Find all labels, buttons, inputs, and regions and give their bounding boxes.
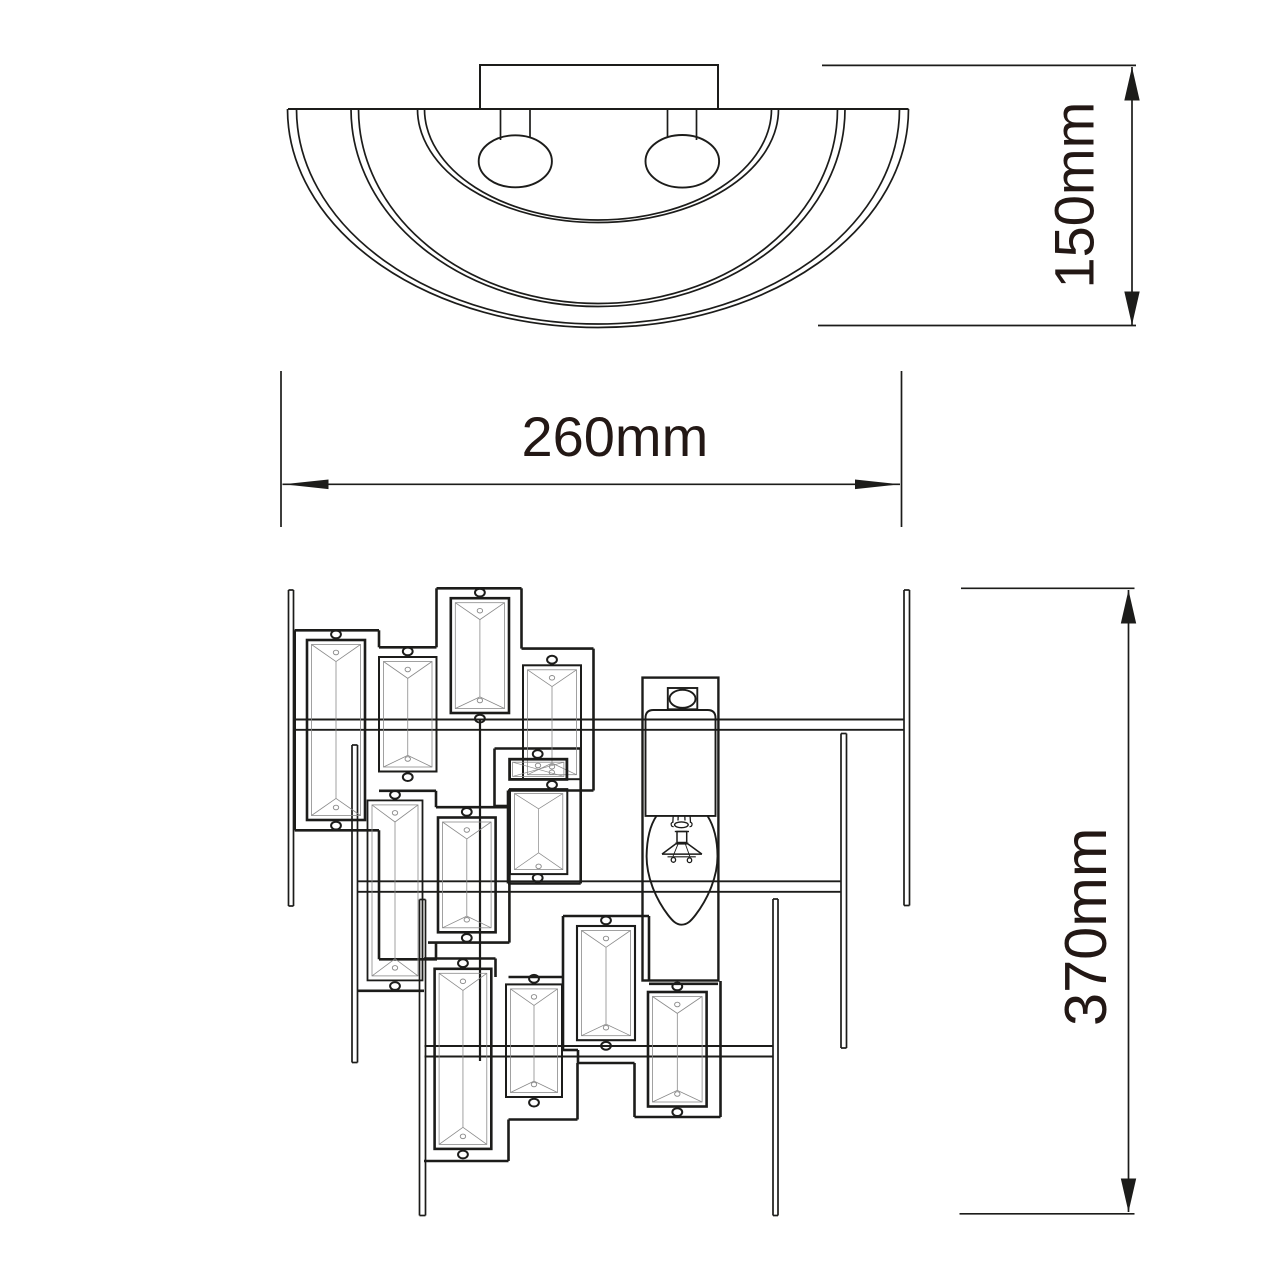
svg-text:150mm: 150mm bbox=[1043, 102, 1106, 289]
svg-text:370mm: 370mm bbox=[1052, 828, 1119, 1026]
svg-text:260mm: 260mm bbox=[522, 405, 709, 468]
